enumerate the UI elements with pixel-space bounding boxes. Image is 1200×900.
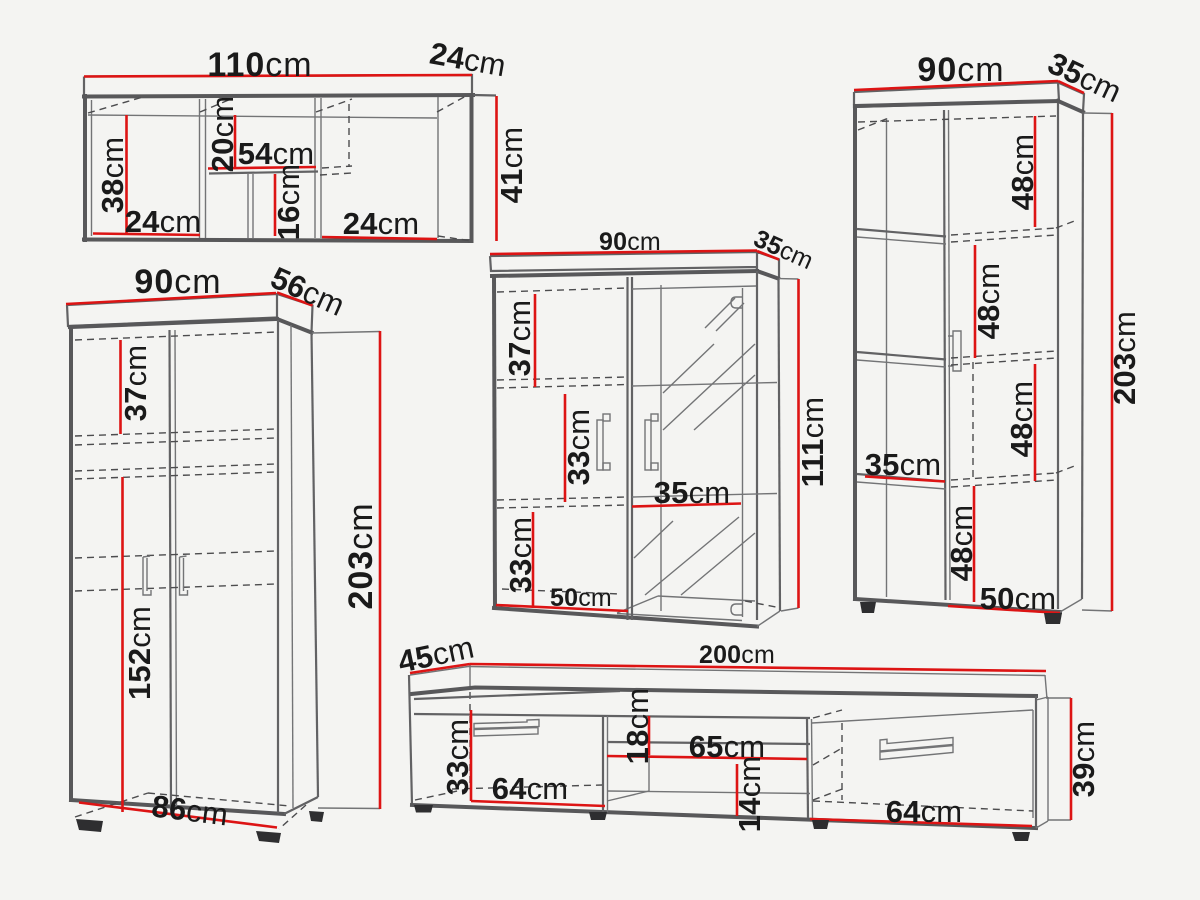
svg-text:33cm: 33cm <box>561 409 596 486</box>
svg-text:90cm: 90cm <box>134 263 221 301</box>
svg-text:24cm: 24cm <box>125 204 202 239</box>
svg-text:90cm: 90cm <box>599 228 661 256</box>
svg-text:152cm: 152cm <box>122 606 157 700</box>
svg-text:38cm: 38cm <box>95 137 130 214</box>
svg-text:14cm: 14cm <box>732 756 767 833</box>
svg-text:37cm: 37cm <box>118 345 153 422</box>
svg-text:90cm: 90cm <box>917 51 1004 89</box>
svg-text:48cm: 48cm <box>944 505 979 582</box>
svg-text:48cm: 48cm <box>971 263 1006 340</box>
svg-text:37cm: 37cm <box>502 300 537 377</box>
svg-text:33cm: 33cm <box>440 719 475 796</box>
svg-text:20cm: 20cm <box>205 96 240 173</box>
svg-text:111cm: 111cm <box>795 397 830 488</box>
svg-text:50cm: 50cm <box>980 581 1057 616</box>
svg-text:48cm: 48cm <box>1005 134 1040 211</box>
svg-text:24cm: 24cm <box>343 206 420 241</box>
svg-text:16cm: 16cm <box>271 164 306 241</box>
svg-text:200cm: 200cm <box>699 641 775 669</box>
svg-text:203cm: 203cm <box>342 502 380 609</box>
svg-text:203cm: 203cm <box>1107 311 1142 405</box>
svg-text:18cm: 18cm <box>620 688 655 765</box>
svg-text:35cm: 35cm <box>865 447 942 482</box>
svg-text:48cm: 48cm <box>1004 381 1039 458</box>
svg-text:50cm: 50cm <box>550 584 612 612</box>
svg-text:39cm: 39cm <box>1066 721 1101 798</box>
svg-text:35cm: 35cm <box>654 475 731 510</box>
svg-text:33cm: 33cm <box>503 517 538 594</box>
svg-text:64cm: 64cm <box>886 794 963 829</box>
svg-text:110cm: 110cm <box>207 46 312 84</box>
svg-text:41cm: 41cm <box>494 127 529 204</box>
svg-text:64cm: 64cm <box>492 771 569 806</box>
